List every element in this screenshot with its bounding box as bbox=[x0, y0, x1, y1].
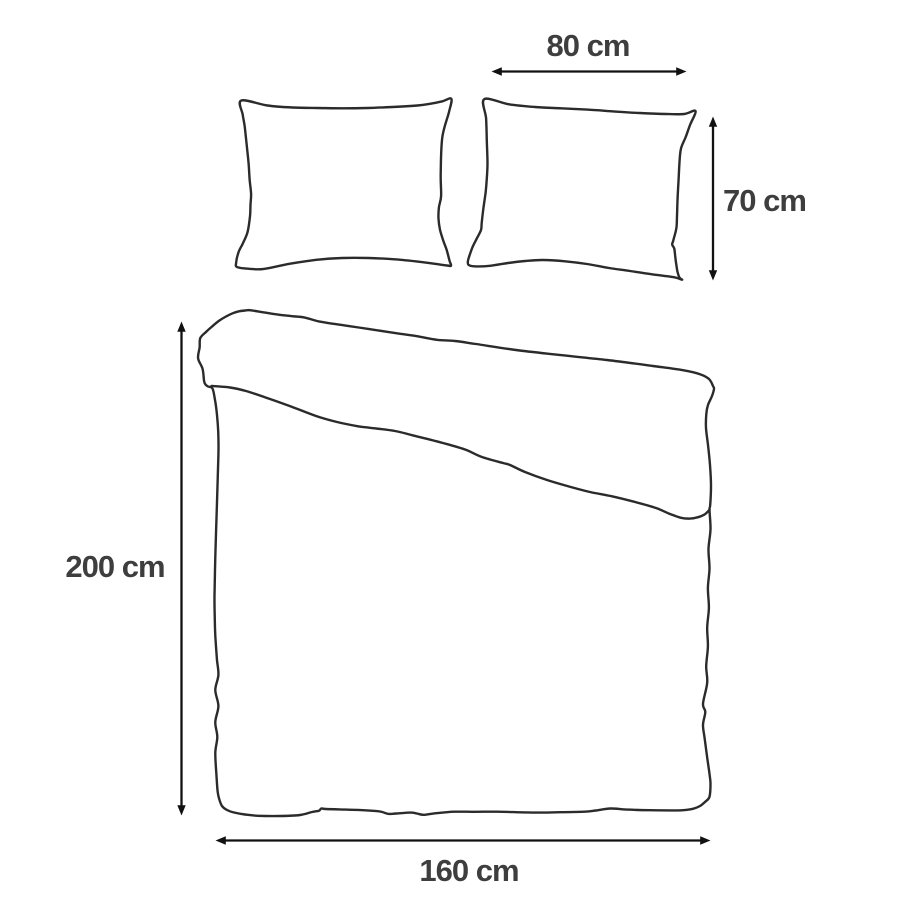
svg-text:70 cm: 70 cm bbox=[723, 183, 806, 218]
svg-text:80 cm: 80 cm bbox=[547, 28, 630, 63]
svg-text:200 cm: 200 cm bbox=[65, 549, 164, 584]
svg-text:160 cm: 160 cm bbox=[419, 853, 518, 888]
